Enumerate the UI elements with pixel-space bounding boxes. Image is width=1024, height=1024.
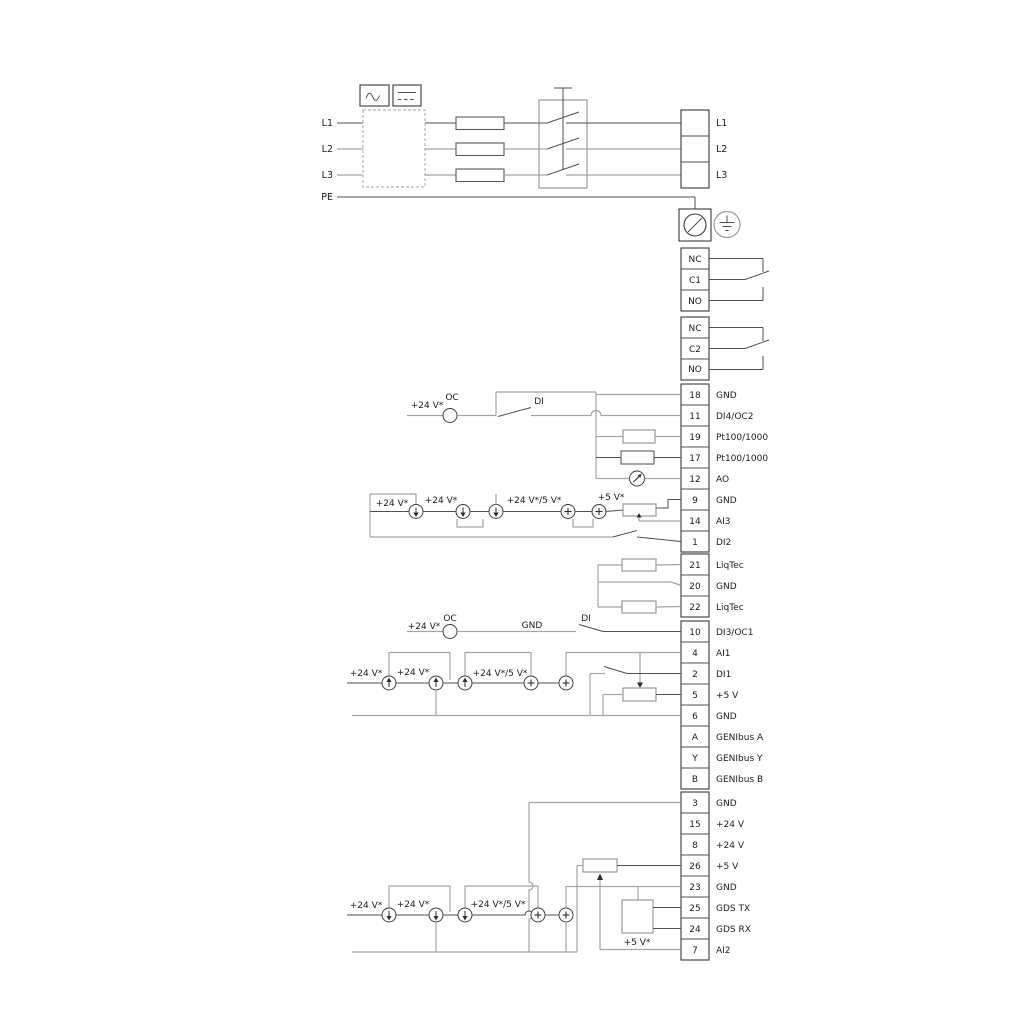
terminal-number: 9 bbox=[692, 496, 698, 506]
terminal-label: LiqTec bbox=[716, 603, 744, 613]
ai2-gds-circuit: +24 V* +24 V* +24 V*/5 V* bbox=[347, 803, 681, 953]
terminal-label: GDS RX bbox=[716, 925, 751, 935]
terminal-number: 23 bbox=[689, 883, 700, 893]
filter-box bbox=[363, 110, 425, 187]
voltage-label: +24 V* bbox=[376, 499, 409, 509]
terminal-label: +5 V bbox=[716, 691, 739, 701]
liqtec-sensor-1 bbox=[598, 559, 681, 571]
terminal-label: +5 V bbox=[716, 862, 739, 872]
relay1-block: NC C1 NO bbox=[681, 248, 769, 311]
terminal-number: 15 bbox=[689, 820, 700, 830]
oc-label: OC bbox=[443, 614, 456, 624]
ac-symbol-icon bbox=[360, 85, 389, 106]
terminal-label: DI3/OC1 bbox=[716, 628, 753, 638]
relay-terminal: NO bbox=[688, 297, 702, 307]
power-input-label: L2 bbox=[322, 144, 333, 155]
power-input-label: PE bbox=[321, 192, 333, 203]
terminal-label: +24 V bbox=[716, 820, 745, 830]
voltage-source-icon bbox=[559, 676, 573, 690]
relay-terminal: NO bbox=[688, 365, 702, 375]
terminal-number: 6 bbox=[692, 712, 698, 722]
terminal-label: Pt100/1000 bbox=[716, 454, 768, 464]
voltage-source-icon bbox=[524, 676, 538, 690]
fuse-l2 bbox=[456, 143, 504, 156]
voltage-label: +5 V* bbox=[598, 493, 625, 503]
voltage-source-icon bbox=[592, 505, 606, 519]
current-source-icon bbox=[382, 908, 396, 922]
terminal-label: Pt100/1000 bbox=[716, 433, 768, 443]
terminal-label: AI2 bbox=[716, 946, 731, 956]
voltage-label: +24 V*/5 V* bbox=[507, 496, 562, 506]
di4-oc2-circuit: +24 V* OC DI bbox=[407, 392, 681, 486]
terminal-number: 5 bbox=[692, 691, 698, 701]
power-input-label: L3 bbox=[322, 170, 333, 181]
current-source-icon bbox=[458, 908, 472, 922]
terminal-number: 4 bbox=[692, 649, 698, 659]
voltage-label: +24 V* bbox=[350, 901, 383, 911]
terminal-label: AI3 bbox=[716, 517, 731, 527]
terminal-number: 3 bbox=[692, 799, 698, 809]
diagram-canvas: L1 L2 L3 PE bbox=[0, 0, 1024, 1024]
di3-oc1-circuit: +24 V* OC GND DI bbox=[407, 614, 681, 639]
screw-terminal-icon bbox=[679, 209, 711, 241]
terminal-label: LiqTec bbox=[716, 561, 744, 571]
terminal-label: GND bbox=[716, 582, 737, 592]
oc-label: OC bbox=[445, 393, 458, 403]
current-source-icon bbox=[409, 505, 423, 519]
power-output-label: L1 bbox=[716, 118, 727, 129]
relay-terminal: NC bbox=[688, 324, 701, 334]
terminal-number: 14 bbox=[689, 517, 701, 527]
terminal-label: DI4/OC2 bbox=[716, 412, 753, 422]
terminal-label: GENIbus A bbox=[716, 733, 764, 743]
potentiometer-ai3 bbox=[623, 500, 681, 522]
terminal-label: GND bbox=[716, 391, 737, 401]
ai3-di2-circuit: +24 V* +24 V* +24 V*/5 V* +5 V* bbox=[370, 493, 681, 542]
dc-symbol-icon bbox=[393, 85, 421, 106]
gnd-label: GND bbox=[522, 621, 543, 631]
voltage-label: +24 V* bbox=[397, 668, 430, 678]
power-output-label: L2 bbox=[716, 144, 727, 155]
terminal-number: 19 bbox=[689, 433, 701, 443]
terminal-label: AO bbox=[716, 475, 729, 485]
current-source-icon bbox=[382, 676, 396, 690]
pe-ground bbox=[337, 197, 740, 241]
terminal-label: +24 V bbox=[716, 841, 745, 851]
current-source-icon bbox=[458, 676, 472, 690]
di-label: DI bbox=[534, 397, 544, 407]
terminal-number: 17 bbox=[689, 454, 700, 464]
terminal-number: 25 bbox=[689, 904, 700, 914]
voltage-source-icon bbox=[561, 505, 575, 519]
terminal-label: GND bbox=[716, 496, 737, 506]
terminal-number: 26 bbox=[689, 862, 701, 872]
terminal-label: AI1 bbox=[716, 649, 731, 659]
potentiometer-ai1 bbox=[603, 688, 681, 716]
terminal-number: 8 bbox=[692, 841, 698, 851]
power-section: L1 L2 L3 PE bbox=[321, 85, 740, 241]
liqtec-block: 21 LiqTec 20 GND 22 LiqTec bbox=[598, 554, 744, 617]
pt100-sensor-2 bbox=[596, 451, 681, 464]
open-collector-icon bbox=[443, 409, 457, 423]
fuse-l3 bbox=[456, 169, 504, 182]
terminal-number: 20 bbox=[689, 582, 701, 592]
power-input-label: L1 bbox=[322, 118, 333, 129]
main-switch bbox=[539, 88, 587, 188]
di-label: DI bbox=[581, 614, 591, 624]
terminal-number: 21 bbox=[689, 561, 700, 571]
current-source-icon bbox=[489, 505, 503, 519]
voltage-source-icon bbox=[559, 908, 573, 922]
terminal-number: 22 bbox=[689, 603, 700, 613]
voltage-label: +24 V* bbox=[397, 900, 430, 910]
current-source-icon bbox=[429, 676, 443, 690]
voltage-label: +24 V*/5 V* bbox=[473, 669, 528, 679]
relay-terminal: NC bbox=[688, 255, 701, 265]
liqtec-sensor-2 bbox=[598, 601, 681, 613]
fuse-l1 bbox=[456, 117, 504, 130]
terminal-number: 24 bbox=[689, 925, 701, 935]
analog-output-meter-icon bbox=[596, 471, 681, 486]
terminal-label: GND bbox=[716, 799, 737, 809]
voltage-label: +24 V* bbox=[408, 622, 441, 632]
terminal-number: 12 bbox=[689, 475, 700, 485]
terminal-label: GENIbus Y bbox=[716, 754, 763, 764]
terminal-label: GENIbus B bbox=[716, 775, 763, 785]
power-output-label: L3 bbox=[716, 170, 727, 181]
terminal-label: DI2 bbox=[716, 538, 731, 548]
terminal-number: 18 bbox=[689, 391, 701, 401]
voltage-label: +24 V* bbox=[350, 669, 383, 679]
open-collector-icon bbox=[443, 625, 457, 639]
terminal-number: Y bbox=[691, 754, 698, 764]
ai1-di1-circuit: +24 V* +24 V* +24 V*/5 V* bbox=[347, 653, 681, 716]
terminal-label: GND bbox=[716, 712, 737, 722]
voltage-source-icon bbox=[531, 908, 545, 922]
io-block-3: 3 GND 15 +24 V 8 +24 V 26 +5 V 23 GND 25… bbox=[681, 792, 751, 960]
pt100-sensor-1 bbox=[596, 430, 681, 443]
current-source-icon bbox=[456, 505, 470, 519]
terminal-label: GND bbox=[716, 883, 737, 893]
terminal-number: 2 bbox=[692, 670, 698, 680]
voltage-label: +24 V* bbox=[425, 496, 458, 506]
terminal-number: 7 bbox=[692, 946, 698, 956]
io-block-1: 18 GND 11 DI4/OC2 19 Pt100/1000 17 Pt100… bbox=[681, 384, 768, 552]
terminal-number: A bbox=[692, 733, 699, 743]
earth-symbol-icon bbox=[714, 212, 740, 238]
io-block-2: 10 DI3/OC1 4 AI1 2 DI1 5 +5 V 6 GND A GE… bbox=[681, 621, 764, 789]
relay2-block: NC C2 NO bbox=[681, 317, 769, 380]
current-source-icon bbox=[429, 908, 443, 922]
terminal-number: B bbox=[692, 775, 698, 785]
mains-terminal-block: L1 L2 L3 bbox=[681, 110, 727, 188]
voltage-label: +24 V* bbox=[411, 401, 444, 411]
voltage-label: +24 V*/5 V* bbox=[471, 900, 526, 910]
wiring-diagram-page: L1 L2 L3 PE bbox=[0, 0, 1024, 1024]
voltage-label: +5 V* bbox=[624, 938, 651, 948]
terminal-number: 10 bbox=[689, 628, 701, 638]
terminal-label: DI1 bbox=[716, 670, 731, 680]
terminal-number: 11 bbox=[689, 412, 700, 422]
terminal-label: GDS TX bbox=[716, 904, 750, 914]
terminal-number: 1 bbox=[692, 538, 698, 548]
gds-sensor: +5 V* bbox=[622, 887, 681, 949]
relay-terminal: C2 bbox=[689, 345, 701, 355]
relay-terminal: C1 bbox=[689, 276, 701, 286]
